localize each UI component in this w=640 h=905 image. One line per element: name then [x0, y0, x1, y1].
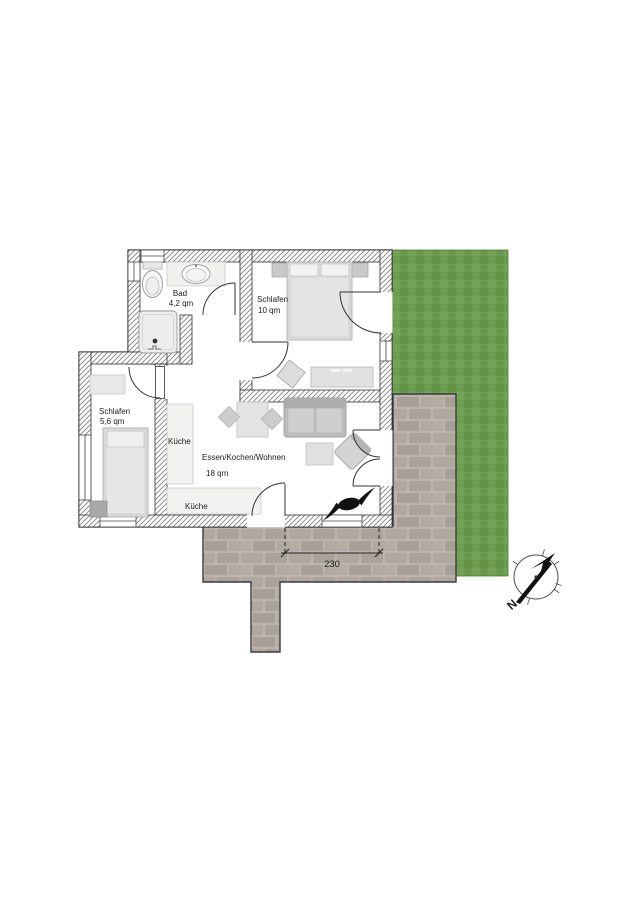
wohnen-label: Essen/Kochen/Wohnen — [202, 453, 285, 462]
kueche-label-1: Küche — [168, 437, 191, 446]
schlafen56-label: Schlafen — [99, 407, 130, 416]
shower — [139, 311, 177, 353]
opening-schlafen10 — [240, 342, 253, 380]
pillow-left — [290, 264, 318, 276]
shelf — [90, 375, 125, 394]
dresser-handle-1 — [331, 369, 340, 372]
pillow-right — [321, 264, 349, 276]
window-bath-left — [128, 262, 140, 281]
shower-drain — [153, 339, 158, 344]
double-bed-mattress — [290, 277, 349, 337]
toilet-tank — [143, 262, 162, 269]
schlafen56-area: 5,6 qm — [100, 417, 125, 426]
bad-label: Bad — [173, 289, 187, 298]
bad-area: 4,2 qm — [169, 299, 194, 308]
compass-north: N — [504, 596, 520, 612]
floorplan-page: Bad 4,2 qm Schlafen 10 qm Schlafen 5,6 q… — [0, 0, 640, 905]
compass-center — [534, 575, 537, 578]
sink-inner — [186, 269, 206, 282]
wall-hall-stub — [180, 315, 192, 364]
sofa — [284, 398, 346, 437]
dimension-value: 230 — [324, 559, 340, 570]
wohnen-area: 18 qm — [206, 469, 229, 478]
wall-schlafen56-top — [79, 352, 167, 364]
floorplan-drawing: Bad 4,2 qm Schlafen 10 qm Schlafen 5,6 q… — [0, 0, 640, 905]
window-schlafen10-right — [380, 341, 392, 361]
opening-garden-door — [380, 292, 393, 333]
toilet-bowl-inner — [146, 277, 159, 295]
opening-entry-door — [247, 515, 285, 528]
wall-top — [128, 250, 392, 262]
nightstand-right — [352, 263, 368, 277]
kitchen-counter-bottom — [167, 488, 261, 514]
single-bed-mattress — [106, 446, 145, 514]
schlafen10-area: 10 qm — [258, 306, 281, 315]
nightstand-left — [272, 263, 288, 277]
side-cabinet — [90, 501, 107, 517]
schlafen10-label: Schlafen — [257, 295, 288, 304]
opening-terrace-door — [380, 430, 393, 486]
window-schlafen56-left — [79, 435, 91, 500]
coffee-table — [306, 443, 333, 465]
single-bed-pillow — [107, 431, 144, 447]
dresser-handle-2 — [343, 369, 352, 372]
sink-faucet — [195, 265, 197, 267]
window-bath-top — [141, 250, 164, 262]
compass: N — [504, 549, 561, 612]
dresser — [311, 367, 373, 387]
kueche-label-2: Küche — [185, 502, 208, 511]
